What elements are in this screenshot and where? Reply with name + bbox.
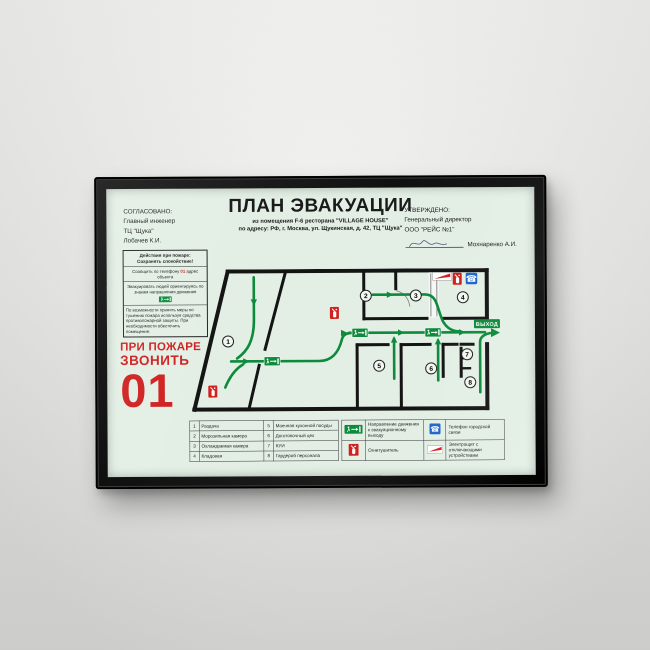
city-phone-icon: ☎ [424,420,446,440]
agreed-block: СОГЛАСОВАНО: Главный инженер ТЦ "Щука" Л… [123,206,238,245]
electrical-panel-icon [433,272,452,280]
approved-line: ООО "РЕЙС №1" [404,224,522,234]
room-number: 8 [468,380,472,387]
agreed-line: Главный инженер [123,216,238,226]
fire-extinguisher-icons [208,273,463,398]
room-num: 5 [264,421,273,431]
exit-sign: ВЫХОД [474,319,500,328]
symbol-label: Огнетушитель [365,440,424,461]
room-number: 4 [461,295,465,302]
approved-block: УТВЕРЖДЕНО: Генеральный директор ООО "РЕ… [404,205,522,250]
emergency-line: ПРИ ПОЖАРЕ [120,341,201,353]
floor-plan-drawing: ☎ ВЫХОД 1 2 3 4 5 6 7 [191,268,504,414]
room-num: 3 [190,441,199,451]
symbol-label: Телефон городской связи [446,419,505,440]
phone-icon: ☎ [466,273,478,285]
emergency-call-block: ПРИ ПОЖАРЕ ЗВОНИТЬ 01 [120,341,201,412]
signature-name: Мохнаренко А.И. [468,239,517,249]
room-num: 2 [190,431,199,441]
agreed-line: ТЦ "Щука" [123,226,238,236]
room-name: Моечная кухонной посуды [273,420,338,430]
agreed-line: Лобачев К.И. [123,235,238,245]
table-row: 4 Кладовая 8 Гардероб персонала [190,451,339,462]
picture-frame: ПЛАН ЭВАКУАЦИИ из помещения F-6 ресторан… [94,175,548,489]
room-name: Кладовая [199,451,264,461]
room-name: Морозильная камера [199,431,264,441]
approved-heading: УТВЕРЖДЕНО: [404,205,522,215]
agreed-heading: СОГЛАСОВАНО: [123,206,238,216]
rooms-legend-table: 1 Раздача 5 Моечная кухонной посуды 2 Мо… [189,420,338,462]
exit-sign-label: ВЫХОД [476,322,498,328]
symbol-label: Электрощит с отключающими устройствами [446,440,505,461]
room-number: 2 [364,293,368,300]
table-row: Направление движения к эвакуационному вы… [342,419,505,440]
svg-text:☎: ☎ [466,275,477,285]
room-number: 3 [414,293,418,300]
room-num: 8 [264,451,273,461]
evacuation-plan-poster: ПЛАН ЭВАКУАЦИИ из помещения F-6 ресторан… [106,187,536,477]
signature-icon [405,236,465,249]
emergency-phone-number: 01 [120,370,201,412]
door-swing-arc [396,291,410,307]
symbol-label: Направление движения к эвакуационному вы… [365,420,424,441]
room-number: 5 [377,363,381,370]
fire-extinguisher-icon [342,440,366,460]
exit-sign-icon [159,296,172,302]
room-name: Гардероб персонала [273,451,338,461]
table-row: Огнетушитель Электрощит с отключающими у… [342,440,505,461]
room-num: 7 [264,441,273,451]
symbols-legend-table: Направление движения к эвакуационному вы… [341,419,504,461]
room-num: 1 [190,421,199,431]
electrical-panel-icon [424,440,446,460]
approved-line: Генеральный директор [404,215,522,225]
room-name: Охлаждаемая камера [199,441,264,451]
room-name: Раздача [199,421,264,431]
room-name: КУИ [273,440,338,450]
actions-title-line: Сохранять спокойствие! [126,258,205,264]
room-num: 6 [264,431,273,441]
svg-text:☎: ☎ [430,425,439,434]
evacuation-direction-sign-icon [342,420,366,440]
floor-plan: ☎ ВЫХОД 1 2 3 4 5 6 7 [191,268,504,414]
room-number: 6 [429,366,433,373]
room-number: 7 [465,352,469,359]
phone-number: 01 [180,269,185,274]
room-num: 4 [190,451,199,461]
room-name: Доготовочный цех [273,430,338,440]
room-number: 1 [226,339,230,346]
